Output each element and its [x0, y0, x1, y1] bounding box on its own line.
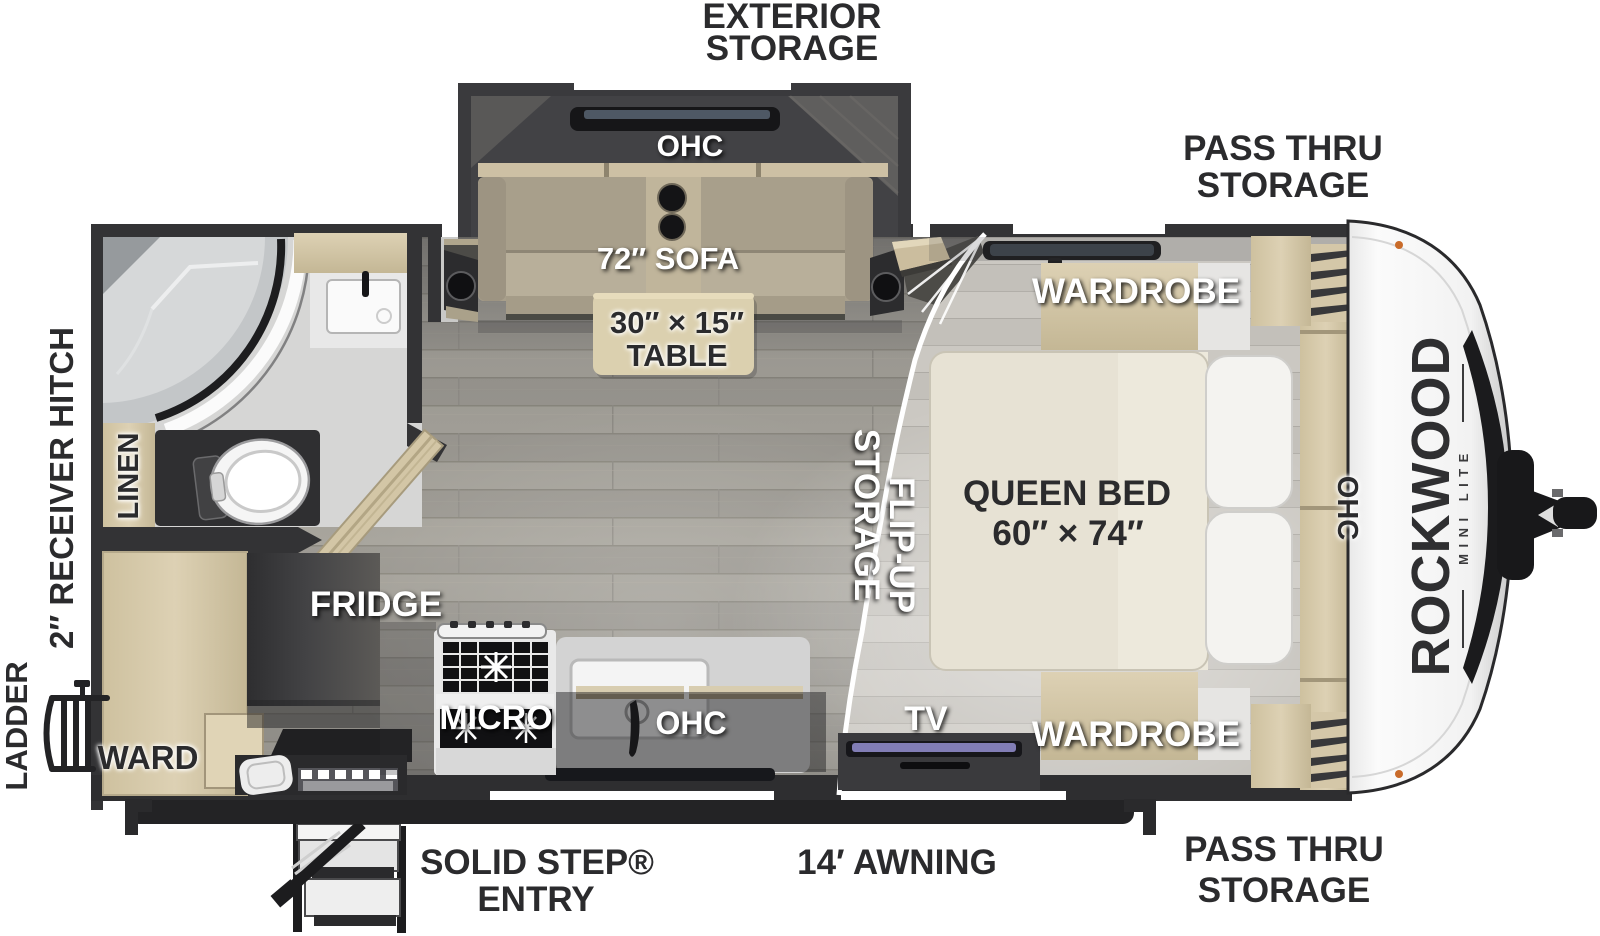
svg-text:WARDROBE: WARDROBE [1032, 715, 1240, 754]
svg-text:SOLID STEP®: SOLID STEP® [420, 843, 654, 882]
svg-text:PASS THRU: PASS THRU [1184, 830, 1384, 869]
svg-text:OHC: OHC [1331, 476, 1363, 541]
svg-text:OHC: OHC [657, 130, 724, 163]
svg-text:ROCKWOOD: ROCKWOOD [1401, 336, 1461, 677]
svg-text:STORAGE: STORAGE [706, 29, 878, 68]
svg-text:72″ SOFA: 72″ SOFA [597, 241, 739, 276]
svg-text:MICRO: MICRO [439, 699, 552, 737]
svg-text:14′ AWNING: 14′ AWNING [797, 843, 997, 882]
svg-text:STORAGE: STORAGE [847, 429, 886, 601]
svg-text:WARD: WARD [98, 739, 199, 776]
svg-text:STORAGE: STORAGE [1197, 166, 1369, 205]
svg-text:TABLE: TABLE [626, 338, 727, 373]
svg-text:PASS THRU: PASS THRU [1183, 129, 1383, 168]
svg-text:LADDER: LADDER [0, 661, 34, 790]
svg-text:STORAGE: STORAGE [1198, 871, 1370, 910]
svg-text:FRIDGE: FRIDGE [310, 585, 442, 624]
svg-text:OHC: OHC [655, 705, 726, 741]
svg-text:TV: TV [904, 700, 948, 738]
svg-text:MINI LITE: MINI LITE [1456, 447, 1471, 565]
svg-text:ENTRY: ENTRY [477, 880, 594, 919]
svg-text:QUEEN BED: QUEEN BED [963, 474, 1171, 513]
svg-text:WARDROBE: WARDROBE [1032, 272, 1240, 311]
svg-text:2″ RECEIVER HITCH: 2″ RECEIVER HITCH [43, 327, 80, 649]
svg-text:FLIP-UP: FLIP-UP [882, 477, 921, 613]
svg-text:60″ × 74″: 60″ × 74″ [992, 514, 1144, 553]
svg-text:LINEN: LINEN [113, 433, 145, 520]
svg-text:30″ × 15″: 30″ × 15″ [610, 305, 744, 340]
